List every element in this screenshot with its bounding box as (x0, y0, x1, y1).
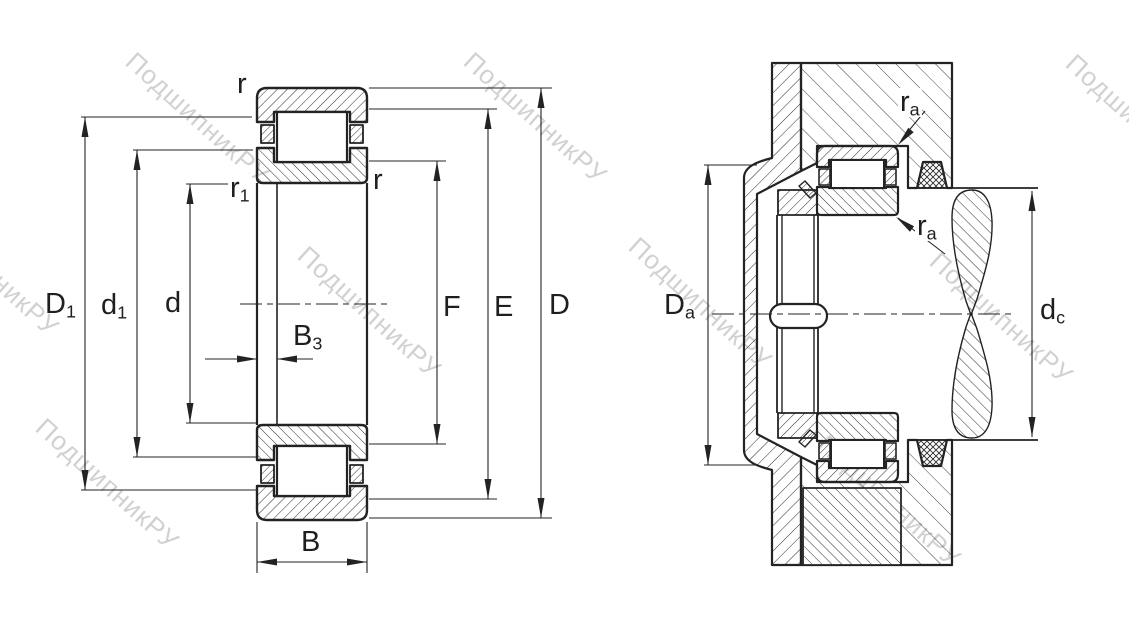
dim-label-r1: r1 (228, 174, 252, 203)
dim-label-B: B (301, 528, 320, 557)
dim-label-r-top: r (237, 70, 247, 99)
dim-label-d: d (165, 289, 181, 318)
dim-label-d1: d1 (101, 291, 127, 320)
left-view-bearing-section (240, 88, 392, 520)
dim-label-D1: D1 (45, 290, 76, 319)
dim-label-E: E (494, 293, 513, 322)
dim-label-ra-bottom: ra (915, 212, 939, 241)
dim-label-ra-top: ra (898, 88, 922, 117)
dim-label-r-right: r (373, 166, 383, 195)
dim-label-dc: dc (1040, 296, 1065, 325)
dim-label-B3: B3 (293, 322, 322, 351)
dim-label-D: D (549, 291, 570, 320)
dim-label-F: F (443, 293, 461, 322)
right-view-mounting-section (712, 63, 1038, 565)
dim-label-Da: Da (664, 291, 695, 320)
bearing-drawing-stage: ПодшипникРУ ПодшипникРУ ПодшипникРУ Подш… (0, 0, 1129, 632)
